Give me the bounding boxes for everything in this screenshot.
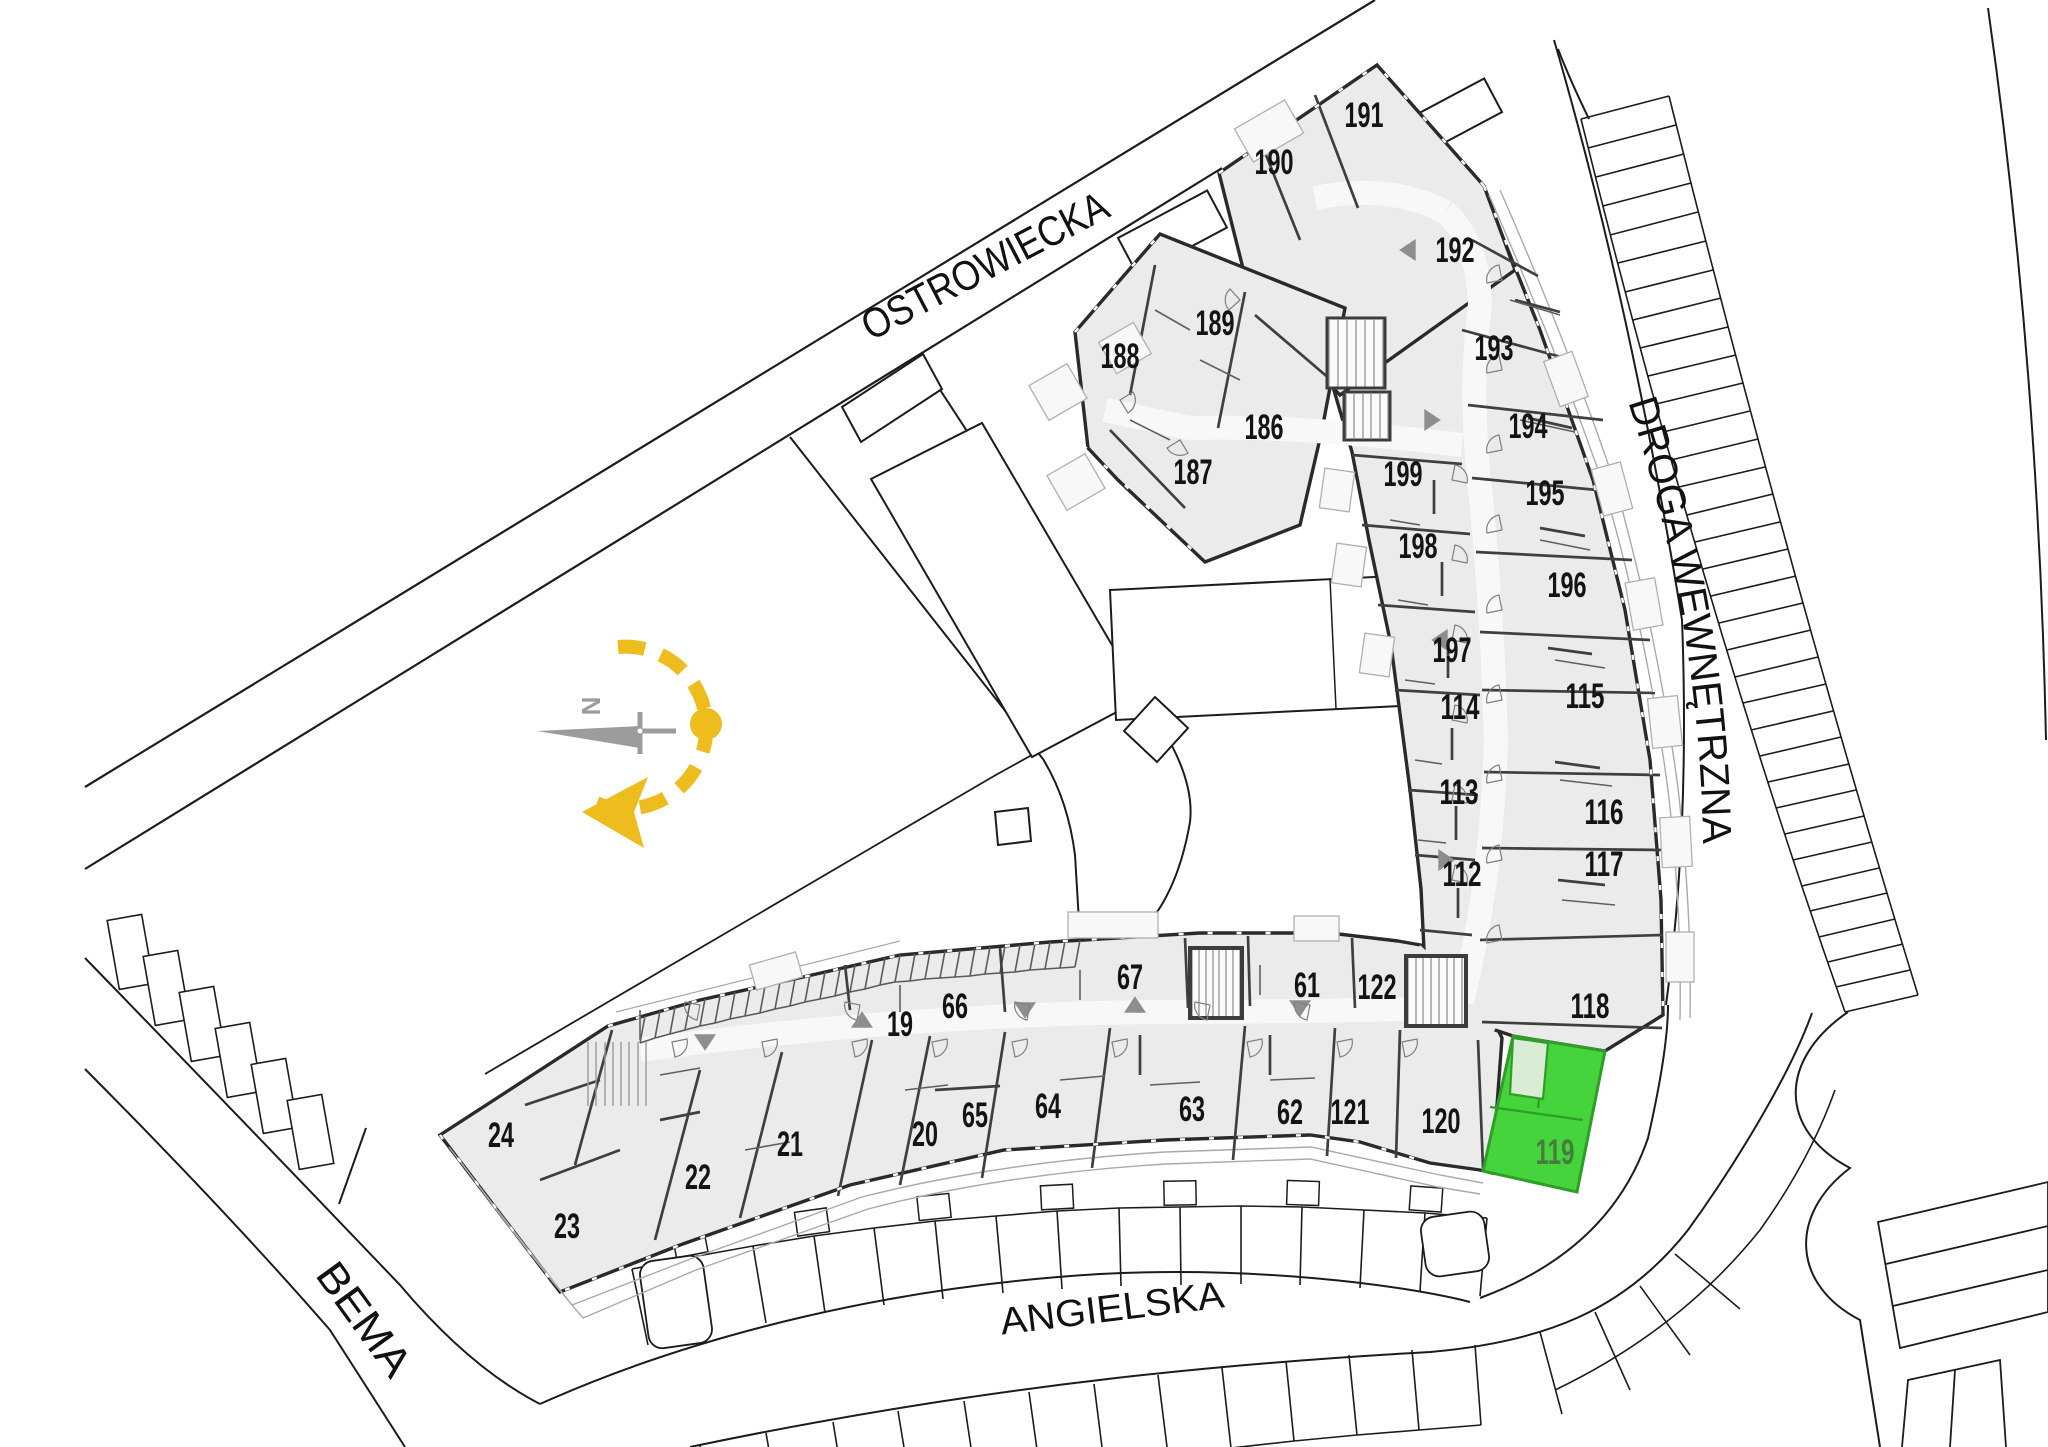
svg-text:61: 61: [1294, 966, 1320, 1005]
svg-text:112: 112: [1443, 855, 1482, 894]
svg-text:24: 24: [488, 1116, 514, 1155]
svg-text:62: 62: [1277, 1093, 1303, 1132]
svg-text:186: 186: [1245, 408, 1284, 447]
svg-text:187: 187: [1174, 453, 1213, 492]
svg-text:189: 189: [1196, 304, 1235, 343]
svg-text:114: 114: [1441, 688, 1480, 727]
svg-text:63: 63: [1179, 1090, 1205, 1129]
svg-text:115: 115: [1566, 677, 1605, 716]
svg-text:119: 119: [1536, 1133, 1575, 1172]
svg-text:194: 194: [1509, 407, 1548, 446]
svg-text:199: 199: [1384, 455, 1423, 494]
svg-text:65: 65: [962, 1096, 988, 1135]
svg-text:121: 121: [1331, 1093, 1370, 1132]
svg-text:195: 195: [1526, 474, 1565, 513]
svg-text:64: 64: [1035, 1087, 1061, 1126]
svg-text:19: 19: [887, 1005, 913, 1044]
svg-text:113: 113: [1440, 773, 1479, 812]
svg-text:118: 118: [1571, 987, 1610, 1026]
svg-text:117: 117: [1585, 845, 1624, 884]
svg-text:20: 20: [912, 1115, 938, 1154]
svg-text:21: 21: [777, 1125, 803, 1164]
svg-text:197: 197: [1433, 631, 1472, 670]
svg-text:198: 198: [1399, 527, 1438, 566]
svg-text:190: 190: [1255, 143, 1294, 182]
svg-text:193: 193: [1475, 329, 1514, 368]
svg-text:22: 22: [685, 1158, 711, 1197]
svg-text:122: 122: [1358, 968, 1397, 1007]
svg-text:188: 188: [1101, 337, 1140, 376]
svg-text:191: 191: [1345, 96, 1384, 135]
svg-text:67: 67: [1117, 958, 1143, 997]
svg-text:N: N: [576, 697, 606, 716]
svg-text:23: 23: [554, 1207, 580, 1246]
svg-text:196: 196: [1548, 566, 1587, 605]
svg-text:66: 66: [942, 987, 968, 1026]
svg-text:192: 192: [1436, 231, 1475, 270]
svg-text:116: 116: [1585, 793, 1624, 832]
svg-text:120: 120: [1422, 1102, 1461, 1141]
